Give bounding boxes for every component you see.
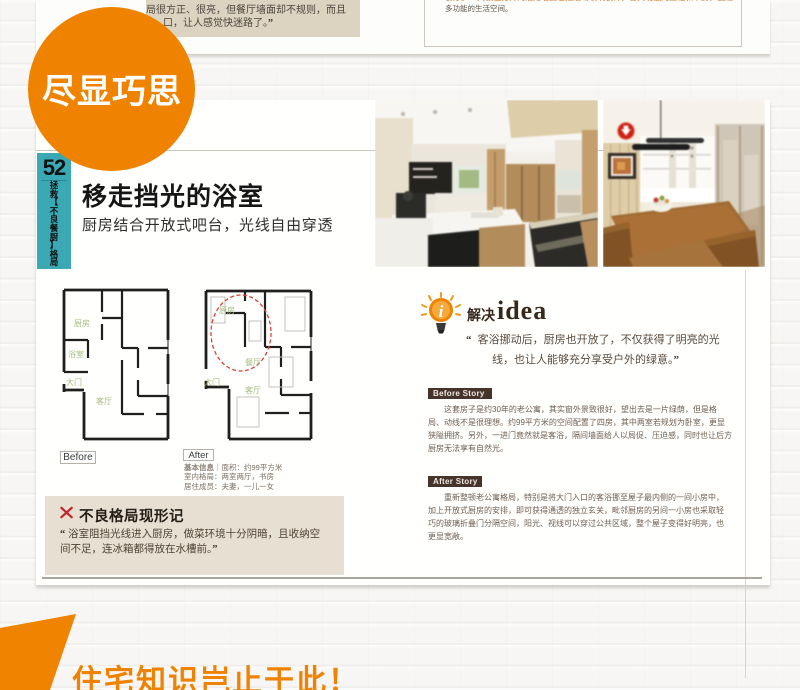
svg-text:客厅: 客厅 — [96, 396, 112, 406]
svg-text:客厅: 客厅 — [245, 385, 261, 395]
svg-text:餐厅: 餐厅 — [245, 358, 261, 367]
svg-text:厨房: 厨房 — [74, 318, 90, 328]
svg-text:浴室: 浴室 — [68, 349, 84, 359]
svg-text:i: i — [439, 302, 444, 321]
svg-text:大门: 大门 — [66, 377, 82, 387]
svg-text:厨房: 厨房 — [219, 305, 235, 315]
svg-text:大门: 大门 — [204, 377, 220, 387]
